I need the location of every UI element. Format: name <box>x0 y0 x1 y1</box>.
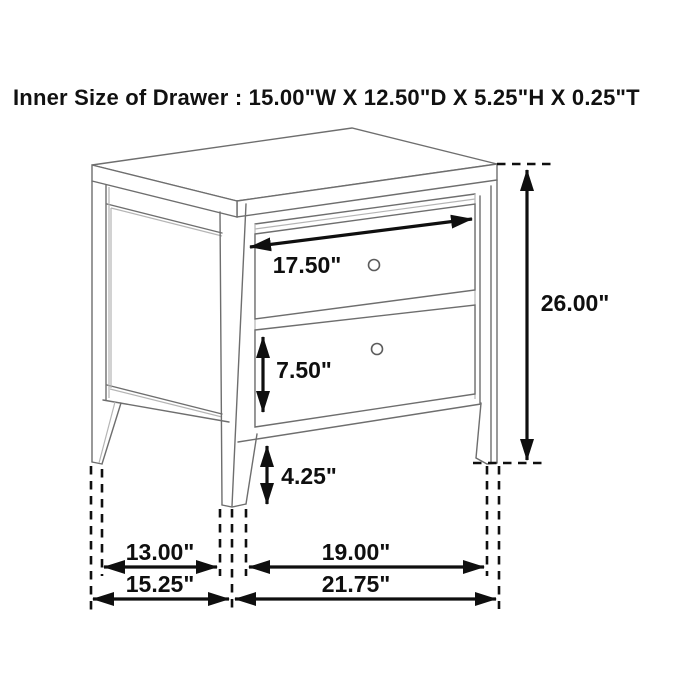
drawer-knob-icon <box>372 344 383 355</box>
leg-outer-edge <box>220 212 222 505</box>
leg-taper-edge <box>246 434 257 504</box>
dim-front-span-inner: 19.00" <box>249 539 484 567</box>
dimension-label: 21.75" <box>322 571 390 597</box>
leg-taper-edge <box>476 403 481 458</box>
dimension-label: 26.00" <box>541 290 609 316</box>
dim-side-depth-overall: 15.25" <box>93 571 229 599</box>
tabletop <box>92 128 497 217</box>
leg-taper-corner <box>99 402 115 463</box>
front-left-leg <box>220 204 257 507</box>
dim-side-span-inner: 13.00" <box>104 539 217 567</box>
leg-corner-edge <box>232 204 246 506</box>
nightstand-line-drawing: 17.50" 7.50" 4.25" 26.00" 13.00" 19.00" … <box>0 0 700 700</box>
left-side-panel <box>103 204 229 422</box>
panel-bottom-shadow <box>110 389 222 417</box>
dimension-label: 13.00" <box>126 539 194 565</box>
front-right-leg <box>476 180 497 464</box>
drawer-knob-icon <box>369 260 380 271</box>
leg-bottom-edge <box>222 504 246 507</box>
panel-bottom-edge <box>107 385 222 414</box>
leg-bottom-edge <box>92 462 102 464</box>
dimension-label: 4.25" <box>281 463 337 489</box>
back-left-leg <box>92 181 121 464</box>
dimension-label: 19.00" <box>322 539 390 565</box>
dim-overall-height: 26.00" <box>527 170 609 460</box>
dimension-label: 15.25" <box>126 571 194 597</box>
product-dimension-diagram: Inner Size of Drawer : 15.00"W X 12.50"D… <box>0 0 700 700</box>
dim-leg-clearance: 4.25" <box>267 446 337 504</box>
nightstand <box>92 128 497 507</box>
leg-taper-edge <box>102 403 121 464</box>
dimension-label: 7.50" <box>276 357 332 383</box>
dimension-label: 17.50" <box>273 252 341 278</box>
panel-top-shadow <box>111 208 222 236</box>
dim-front-width-overall: 21.75" <box>235 571 496 599</box>
